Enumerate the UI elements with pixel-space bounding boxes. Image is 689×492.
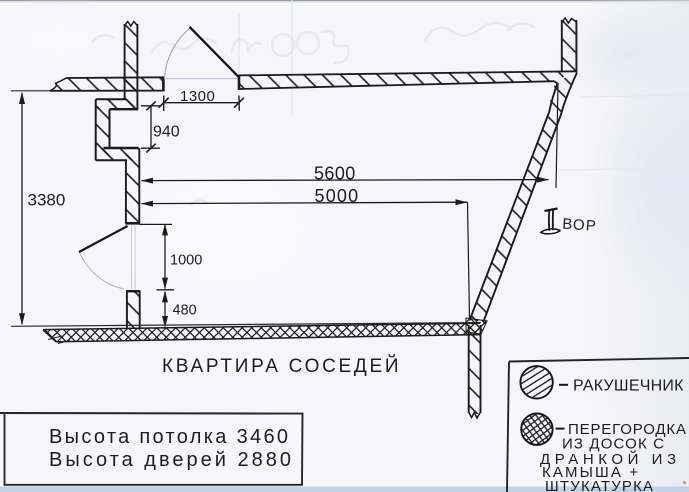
svg-text:ШТУКАТУРКА: ШТУКАТУРКА: [545, 478, 653, 492]
svg-text:ВОР: ВОР: [562, 216, 598, 235]
svg-text:940: 940: [153, 124, 180, 141]
svg-text:РАКУШЕЧНИК: РАКУШЕЧНИК: [573, 378, 684, 395]
svg-text:ИЗ ДОСОК С: ИЗ ДОСОК С: [562, 436, 664, 453]
svg-text:5000: 5000: [315, 186, 360, 206]
svg-text:3380: 3380: [28, 191, 66, 210]
svg-text:5600: 5600: [314, 164, 356, 184]
svg-text:КВАРТИРА СОСЕДЕЙ: КВАРТИРА СОСЕДЕЙ: [162, 355, 400, 377]
svg-text:1300: 1300: [180, 88, 215, 105]
svg-text:Высота потолка 3460: Высота потолка 3460: [49, 426, 288, 448]
svg-text:480: 480: [173, 303, 197, 319]
svg-text:1000: 1000: [170, 253, 202, 269]
